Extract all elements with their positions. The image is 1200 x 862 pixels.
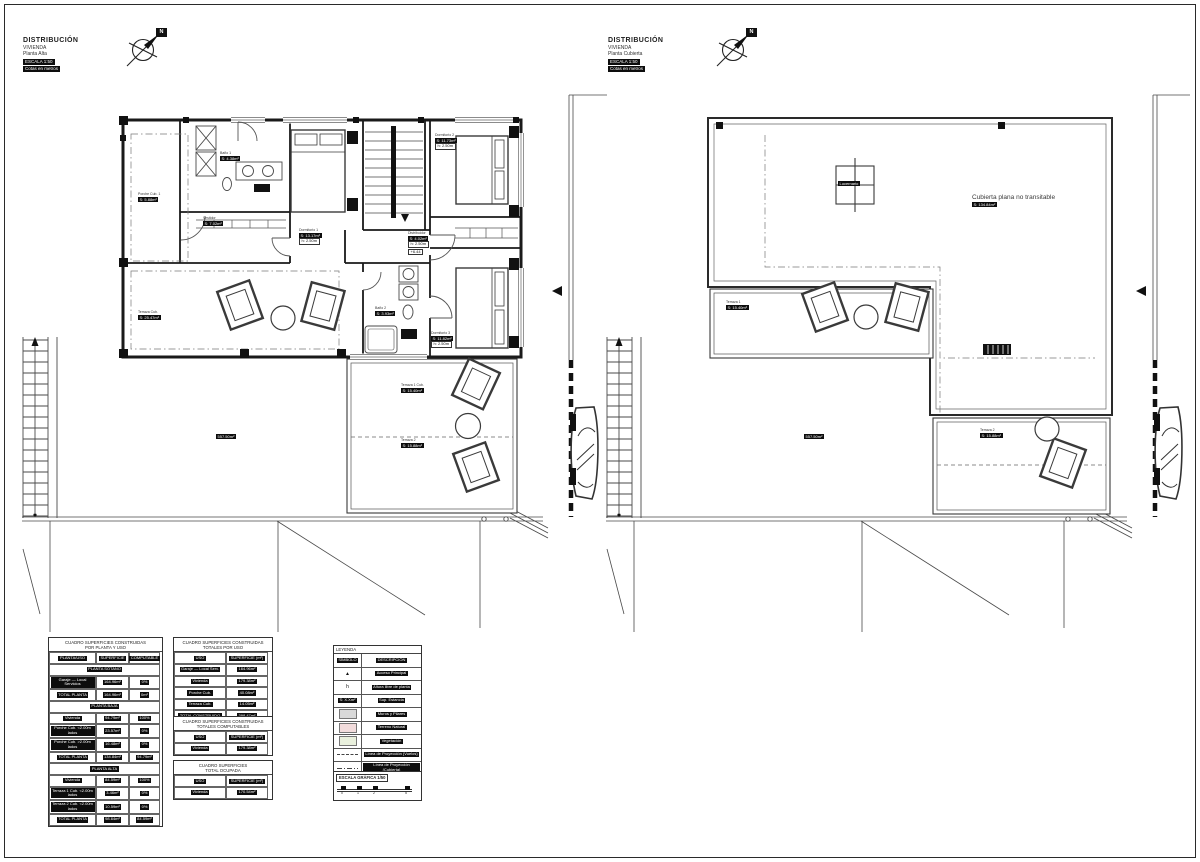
table-title: CUADRO SUPERFICIES CONSTRUIDAS POR PLANT…: [49, 638, 162, 652]
room-label-dormitorio3: Dormitorio 3 S: 11.82m² h: 2.50m: [431, 331, 453, 348]
room-label-banyo2: Baño 2 S: 3.93m²: [375, 306, 395, 316]
table-total-ocupada: CUADRO SUPERFICIES TOTAL OCUPADA USO SUP…: [173, 760, 273, 800]
roof-vent: [983, 344, 1011, 355]
units-note: Cotas en metros: [23, 66, 60, 72]
table-header-row: USO SUPERFICIE (m²): [174, 731, 272, 743]
room-label-terraza1-roof: Terraza 1 S: 15.40m²: [726, 300, 749, 310]
table-row: Vivienda 179.38m²: [174, 676, 272, 688]
table-title: CUADRO SUPERFICIES CONSTRUIDAS TOTALES P…: [174, 638, 272, 652]
table-header-row: USO SUPERFICIE (m²): [174, 775, 272, 787]
car-icon: [1154, 407, 1182, 499]
title-block-right: DISTRIBUCIÓN VIVIENDA Planta Cubierta ES…: [608, 37, 663, 72]
room-label-distribuidor: Distribuidor S: 4.02m² h: 2.50m +6.44: [408, 231, 429, 255]
legend-row: ▲ Acceso Principal: [334, 668, 421, 682]
height-symbol: h: [346, 684, 349, 690]
legend-row: h Altura libre de planta: [334, 681, 421, 695]
graphic-scale: ESCALA GRÁFICA 1/50 0 1 2 5: [333, 771, 422, 801]
round-table: [1035, 417, 1059, 441]
round-table: [456, 414, 481, 439]
units-note: Cotas en metros: [608, 66, 645, 72]
exterior-stair: [607, 337, 641, 518]
access-triangle-icon: ▲: [345, 671, 350, 677]
table-row: Vivienda 84.59m² 100%: [49, 775, 162, 787]
legend: LEYENDA SÍMBOLO DESCRIPCIÓN ▲ Acceso Pri…: [333, 645, 422, 776]
compass-north-letter: N: [746, 28, 757, 37]
legend-row: Terreno Natural: [334, 722, 421, 736]
legend-row: Vegetación: [334, 735, 421, 749]
vegetation-swatch: [339, 736, 357, 746]
drawing-sheet: DISTRIBUCIÓN VIVIENDA Planta Alta ESCALA…: [0, 0, 1200, 862]
table-row: Porche Cub. >2.00m lados 16.48m² 0%: [49, 738, 162, 752]
graphic-scale-title: ESCALA GRÁFICA 1/50: [336, 774, 388, 782]
table-header-row: PLANTA/USO SUPERFICIE COMPUTABLE: [49, 652, 162, 664]
title-block-left: DISTRIBUCIÓN VIVIENDA Planta Alta ESCALA…: [23, 37, 78, 72]
round-table: [271, 306, 295, 330]
room-label-terraza-cub: Terraza Cub. S: 25.47m²: [138, 310, 161, 320]
legend-row: S: X.Xm² Sup. Estancia: [334, 695, 421, 709]
table-row: Terraza 1 Cub. <2.00m lados 3.46m² 0%: [49, 787, 162, 801]
table-row: Garaje — Local Serv. 164.96m²: [174, 664, 272, 676]
table-section-row: PLANTA SÓTANO: [49, 664, 162, 676]
table-row: Porche Cub. 40.08m²: [174, 687, 272, 699]
table-title: CUADRO SUPERFICIES CONSTRUIDAS TOTALES C…: [174, 717, 272, 731]
plan-type: DISTRIBUCIÓN: [23, 37, 78, 45]
table-section-row: PLANTA ALTA: [49, 763, 162, 775]
table-row: Terraza Cub. 14.05m²: [174, 699, 272, 711]
room-label-banyo1: Baño 1 S: 4.38m²: [220, 151, 240, 161]
table-row: Terraza 2 Cub. <2.00m lados 10.59m² 0%: [49, 800, 162, 814]
table-row: Vivienda 179.38m²: [174, 743, 272, 755]
access-arrow-icon: [552, 286, 562, 296]
roof-note-label: Cubierta plana no transitable S: 134.84m…: [972, 194, 1055, 207]
room-label-porche: Porche Cub. 1 S: 5.88m²: [138, 192, 160, 202]
area-chip-symbol: S: X.Xm²: [338, 698, 357, 703]
plan-type: DISTRIBUCIÓN: [608, 37, 663, 45]
terrain-swatch: [339, 723, 357, 733]
table-title: CUADRO SUPERFICIES TOTAL OCUPADA: [174, 761, 272, 775]
plan-level: Planta Cubierta: [608, 51, 663, 57]
room-label-terraza2-roof: Terraza 2 S: 15.88m²: [980, 428, 1003, 438]
table-totales-computables: CUADRO SUPERFICIES CONSTRUIDAS TOTALES C…: [173, 716, 273, 756]
plot-area-label: 557.50m²: [216, 433, 236, 439]
exterior-stair: [23, 337, 57, 518]
table-row: TOTAL PLANTA 98.64m² 84.59m²: [49, 814, 162, 826]
legend-title: LEYENDA: [334, 646, 421, 654]
plot-area-label: 557.50m²: [804, 433, 824, 439]
table-row: Garaje — Local Servicios 164.96m² 0%: [49, 676, 162, 690]
room-label-vestidor: Vestidor S: 7.02m²: [203, 216, 223, 226]
legend-row: Muros y Pilares: [334, 708, 421, 722]
table-row: TOTAL PLANTA 134.84m² 94.79m²: [49, 752, 162, 764]
skylight-label: Lucernario: [838, 180, 860, 186]
walls-swatch: [339, 709, 357, 719]
car-icon: [570, 407, 598, 499]
table-section-row: PLANTA BAJA: [49, 701, 162, 713]
plan-level: Planta Alta: [23, 51, 78, 57]
floor-plan-planta-alta: [119, 116, 525, 513]
scale-note: ESCALA 1:50: [23, 59, 55, 65]
dashed-line-symbol: [337, 754, 358, 755]
access-arrow-icon: [1136, 286, 1146, 296]
room-label-dormitorio2: Dormitorio 2 S: 11.73m² h: 2.50m: [435, 133, 457, 150]
dashdot-line-symbol: [337, 768, 358, 769]
legend-row: Línea de Proyección (Vuelos): [334, 749, 421, 763]
table-row: Vivienda 94.79m² 100%: [49, 713, 162, 725]
graphic-scale-bar: 0 1 2 5: [337, 783, 418, 796]
room-label-terraza1: Terraza 1 Cub. S: 15.40m²: [401, 383, 424, 393]
roof-plan-planta-cubierta: [708, 118, 1112, 514]
legend-header-row: SÍMBOLO DESCRIPCIÓN: [334, 654, 421, 668]
round-table: [854, 305, 878, 329]
table-header-row: USO SUPERFICIE (m²): [174, 652, 272, 664]
table-row: TOTAL PLANTA 164.96m² 0m²: [49, 689, 162, 701]
scale-note: ESCALA 1:50: [608, 59, 640, 65]
table-superficies-por-planta: CUADRO SUPERFICIES CONSTRUIDAS POR PLANT…: [48, 637, 163, 827]
room-label-terraza2: Terraza 2 S: 15.88m²: [401, 438, 424, 448]
compass-north-letter: N: [156, 28, 167, 37]
table-totales-por-uso: CUADRO SUPERFICIES CONSTRUIDAS TOTALES P…: [173, 637, 273, 723]
table-row: Vivienda 170.54m²: [174, 787, 272, 799]
table-row: Porche Cub. <2.00m lados 23.57m² 0%: [49, 724, 162, 738]
room-label-dormitorio1: Dormitorio 1 S: 13.17m² h: 2.50m: [299, 228, 322, 245]
